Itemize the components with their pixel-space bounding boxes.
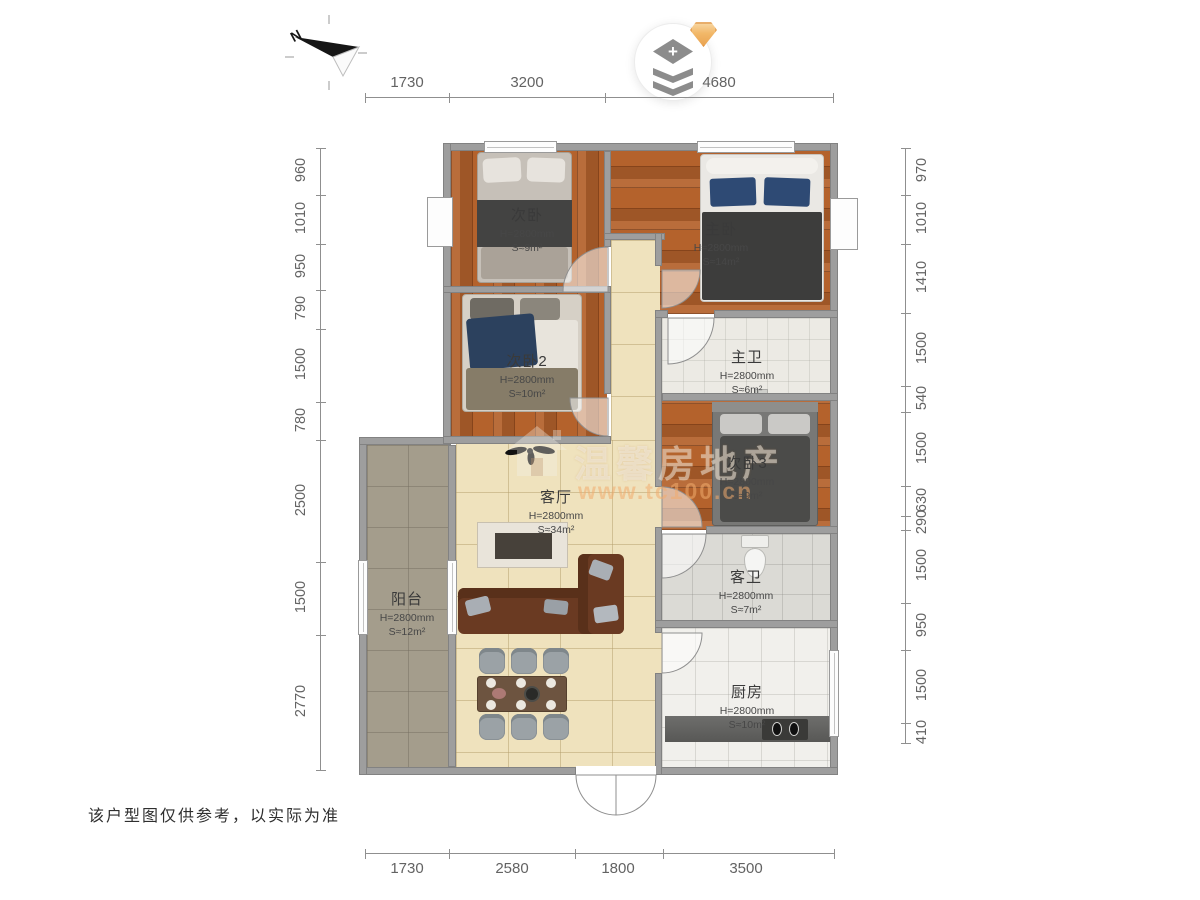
bed-cibed3 — [712, 402, 818, 526]
bay-window — [427, 197, 453, 247]
dining-table — [477, 676, 567, 712]
dimension-line-left — [320, 148, 321, 770]
entry-opening — [576, 766, 656, 776]
stove-burner — [789, 722, 799, 736]
compass-north-letter: N — [287, 26, 303, 45]
dimension-label: 1500 — [912, 418, 932, 478]
tv-stand — [477, 522, 568, 568]
north-compass-icon: N — [281, 10, 373, 98]
room-floor-masterbath — [662, 318, 830, 397]
wall — [359, 767, 576, 775]
tv — [495, 533, 552, 559]
dimension-label: 1410 — [912, 247, 932, 307]
blanket — [477, 200, 572, 247]
window — [484, 141, 557, 153]
toilet — [741, 535, 769, 585]
dimension-label: 1500 — [291, 334, 311, 394]
wall — [655, 673, 662, 775]
door-arc-entry-right — [616, 775, 656, 815]
dimension-label: 1800 — [588, 860, 648, 877]
stove-burner — [772, 722, 782, 736]
dimension-label: 410 — [912, 702, 932, 762]
dimension-label: 1500 — [912, 535, 932, 595]
dining-chair — [543, 648, 569, 674]
dimension-label: 2580 — [482, 860, 542, 877]
dimension-line-right — [905, 148, 906, 743]
wall — [443, 143, 451, 445]
dimension-label: 1730 — [377, 860, 437, 877]
sofa-cushion — [593, 604, 619, 623]
bay-window — [830, 198, 858, 250]
pillow — [768, 414, 810, 434]
blanket — [702, 212, 822, 300]
window — [829, 650, 839, 737]
dimension-line-top — [365, 97, 833, 98]
stove — [762, 719, 808, 740]
dimension-label: 1010 — [912, 188, 932, 248]
dining-chair — [479, 648, 505, 674]
dimension-label: 950 — [912, 595, 932, 655]
dimension-label: 1730 — [377, 74, 437, 91]
pillow — [720, 414, 762, 434]
dimension-label: 790 — [291, 278, 311, 338]
pillow — [764, 177, 811, 207]
dining-chair — [479, 714, 505, 740]
dining-chair — [511, 648, 537, 674]
sofa-cushion — [543, 599, 568, 615]
bed-cibed2 — [462, 294, 582, 412]
dimension-label: 2500 — [291, 470, 311, 530]
table-flowers — [492, 688, 506, 699]
wall — [656, 767, 838, 775]
window — [447, 560, 457, 635]
pillow — [482, 157, 521, 183]
door-arc-entry-left — [576, 775, 616, 815]
blanket — [720, 436, 810, 522]
dimension-label: 4680 — [689, 74, 749, 91]
dimension-label: 3500 — [716, 860, 776, 877]
wall — [359, 437, 451, 445]
bed-master — [700, 154, 824, 302]
layer-band-icon — [653, 68, 693, 83]
dimension-line-bottom — [365, 853, 834, 854]
wall — [604, 292, 611, 394]
wall — [443, 286, 611, 293]
window — [358, 560, 368, 635]
table-dish — [524, 686, 540, 702]
dimension-label: 2770 — [291, 671, 311, 731]
wall — [655, 312, 662, 487]
room-floor-kitchen — [662, 628, 830, 767]
disclaimer-text: 该户型图仅供参考，以实际为准 — [88, 802, 340, 826]
bed-cibed1 — [477, 152, 572, 283]
wall — [662, 393, 838, 401]
wall — [706, 526, 838, 534]
dimension-label: 780 — [291, 390, 311, 450]
dining-chair — [543, 714, 569, 740]
dining-chair — [511, 714, 537, 740]
wall — [655, 310, 668, 318]
pillow — [527, 157, 566, 182]
dimension-label: 3200 — [497, 74, 557, 91]
wall — [443, 436, 611, 444]
layers-plus-icon: + — [653, 39, 693, 64]
wall — [714, 310, 838, 318]
blanket — [466, 313, 538, 371]
wall — [655, 620, 838, 628]
pillow — [710, 177, 757, 207]
wall — [655, 233, 662, 266]
dimension-label: 1500 — [291, 567, 311, 627]
room-floor-balcony — [367, 445, 448, 767]
window — [697, 141, 795, 153]
floorplan-page: N + — [0, 0, 1200, 900]
hallway-floor — [611, 240, 660, 440]
wall — [655, 527, 662, 633]
layer-band-icon — [653, 81, 693, 96]
